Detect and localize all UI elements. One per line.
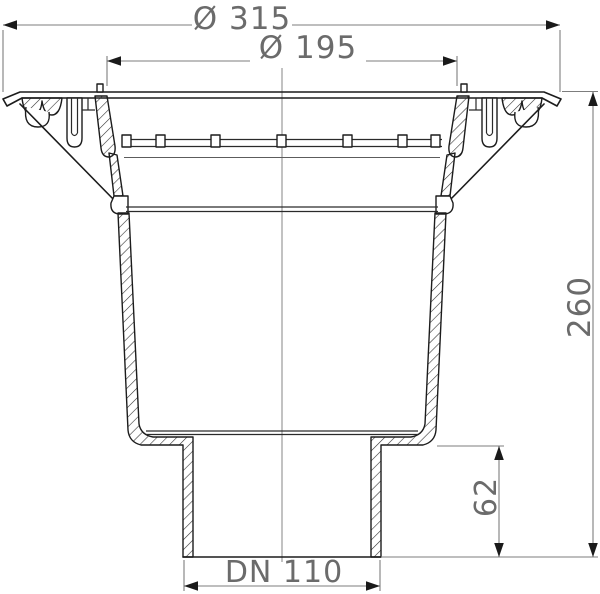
grate-frame-pin-right [461, 84, 467, 92]
grate-clip [398, 135, 407, 147]
funnel-collar-left [95, 96, 115, 157]
dimension-label-total-height: 260 [562, 276, 598, 338]
body-wall-right [371, 213, 446, 557]
clamp-section-left [20, 96, 128, 214]
drain-technical-drawing: Ø 315 Ø 195 260 62 DN 110 [0, 0, 600, 594]
drawing-canvas: Ø 315 Ø 195 260 62 DN 110 [0, 0, 600, 594]
grate-clip [343, 135, 352, 147]
bucket-lip-right [436, 196, 453, 214]
bolt-left [67, 98, 82, 147]
dimension-label-outlet-length: 62 [469, 477, 504, 517]
grate-clip [277, 135, 286, 147]
body-wall-left [118, 213, 193, 557]
funnel-band-left [109, 153, 123, 196]
grate-clip [122, 135, 131, 147]
funnel-band-right [441, 153, 455, 196]
grate-clip [156, 135, 165, 147]
grate-frame-pin-left [97, 84, 103, 92]
grate-clip [431, 135, 440, 147]
clamp-section-right [436, 96, 544, 214]
dimension-label-inner-diameter: Ø 195 [259, 30, 357, 66]
funnel-collar-right [449, 96, 469, 157]
dimension-outlet-nominal: DN 110 [184, 555, 380, 591]
grate-clip [211, 135, 220, 147]
dimension-outlet-length: 62 [437, 446, 504, 557]
bolt-right [482, 98, 497, 147]
dimension-label-outlet-nominal: DN 110 [225, 555, 343, 590]
bucket-lip-left [111, 196, 128, 214]
